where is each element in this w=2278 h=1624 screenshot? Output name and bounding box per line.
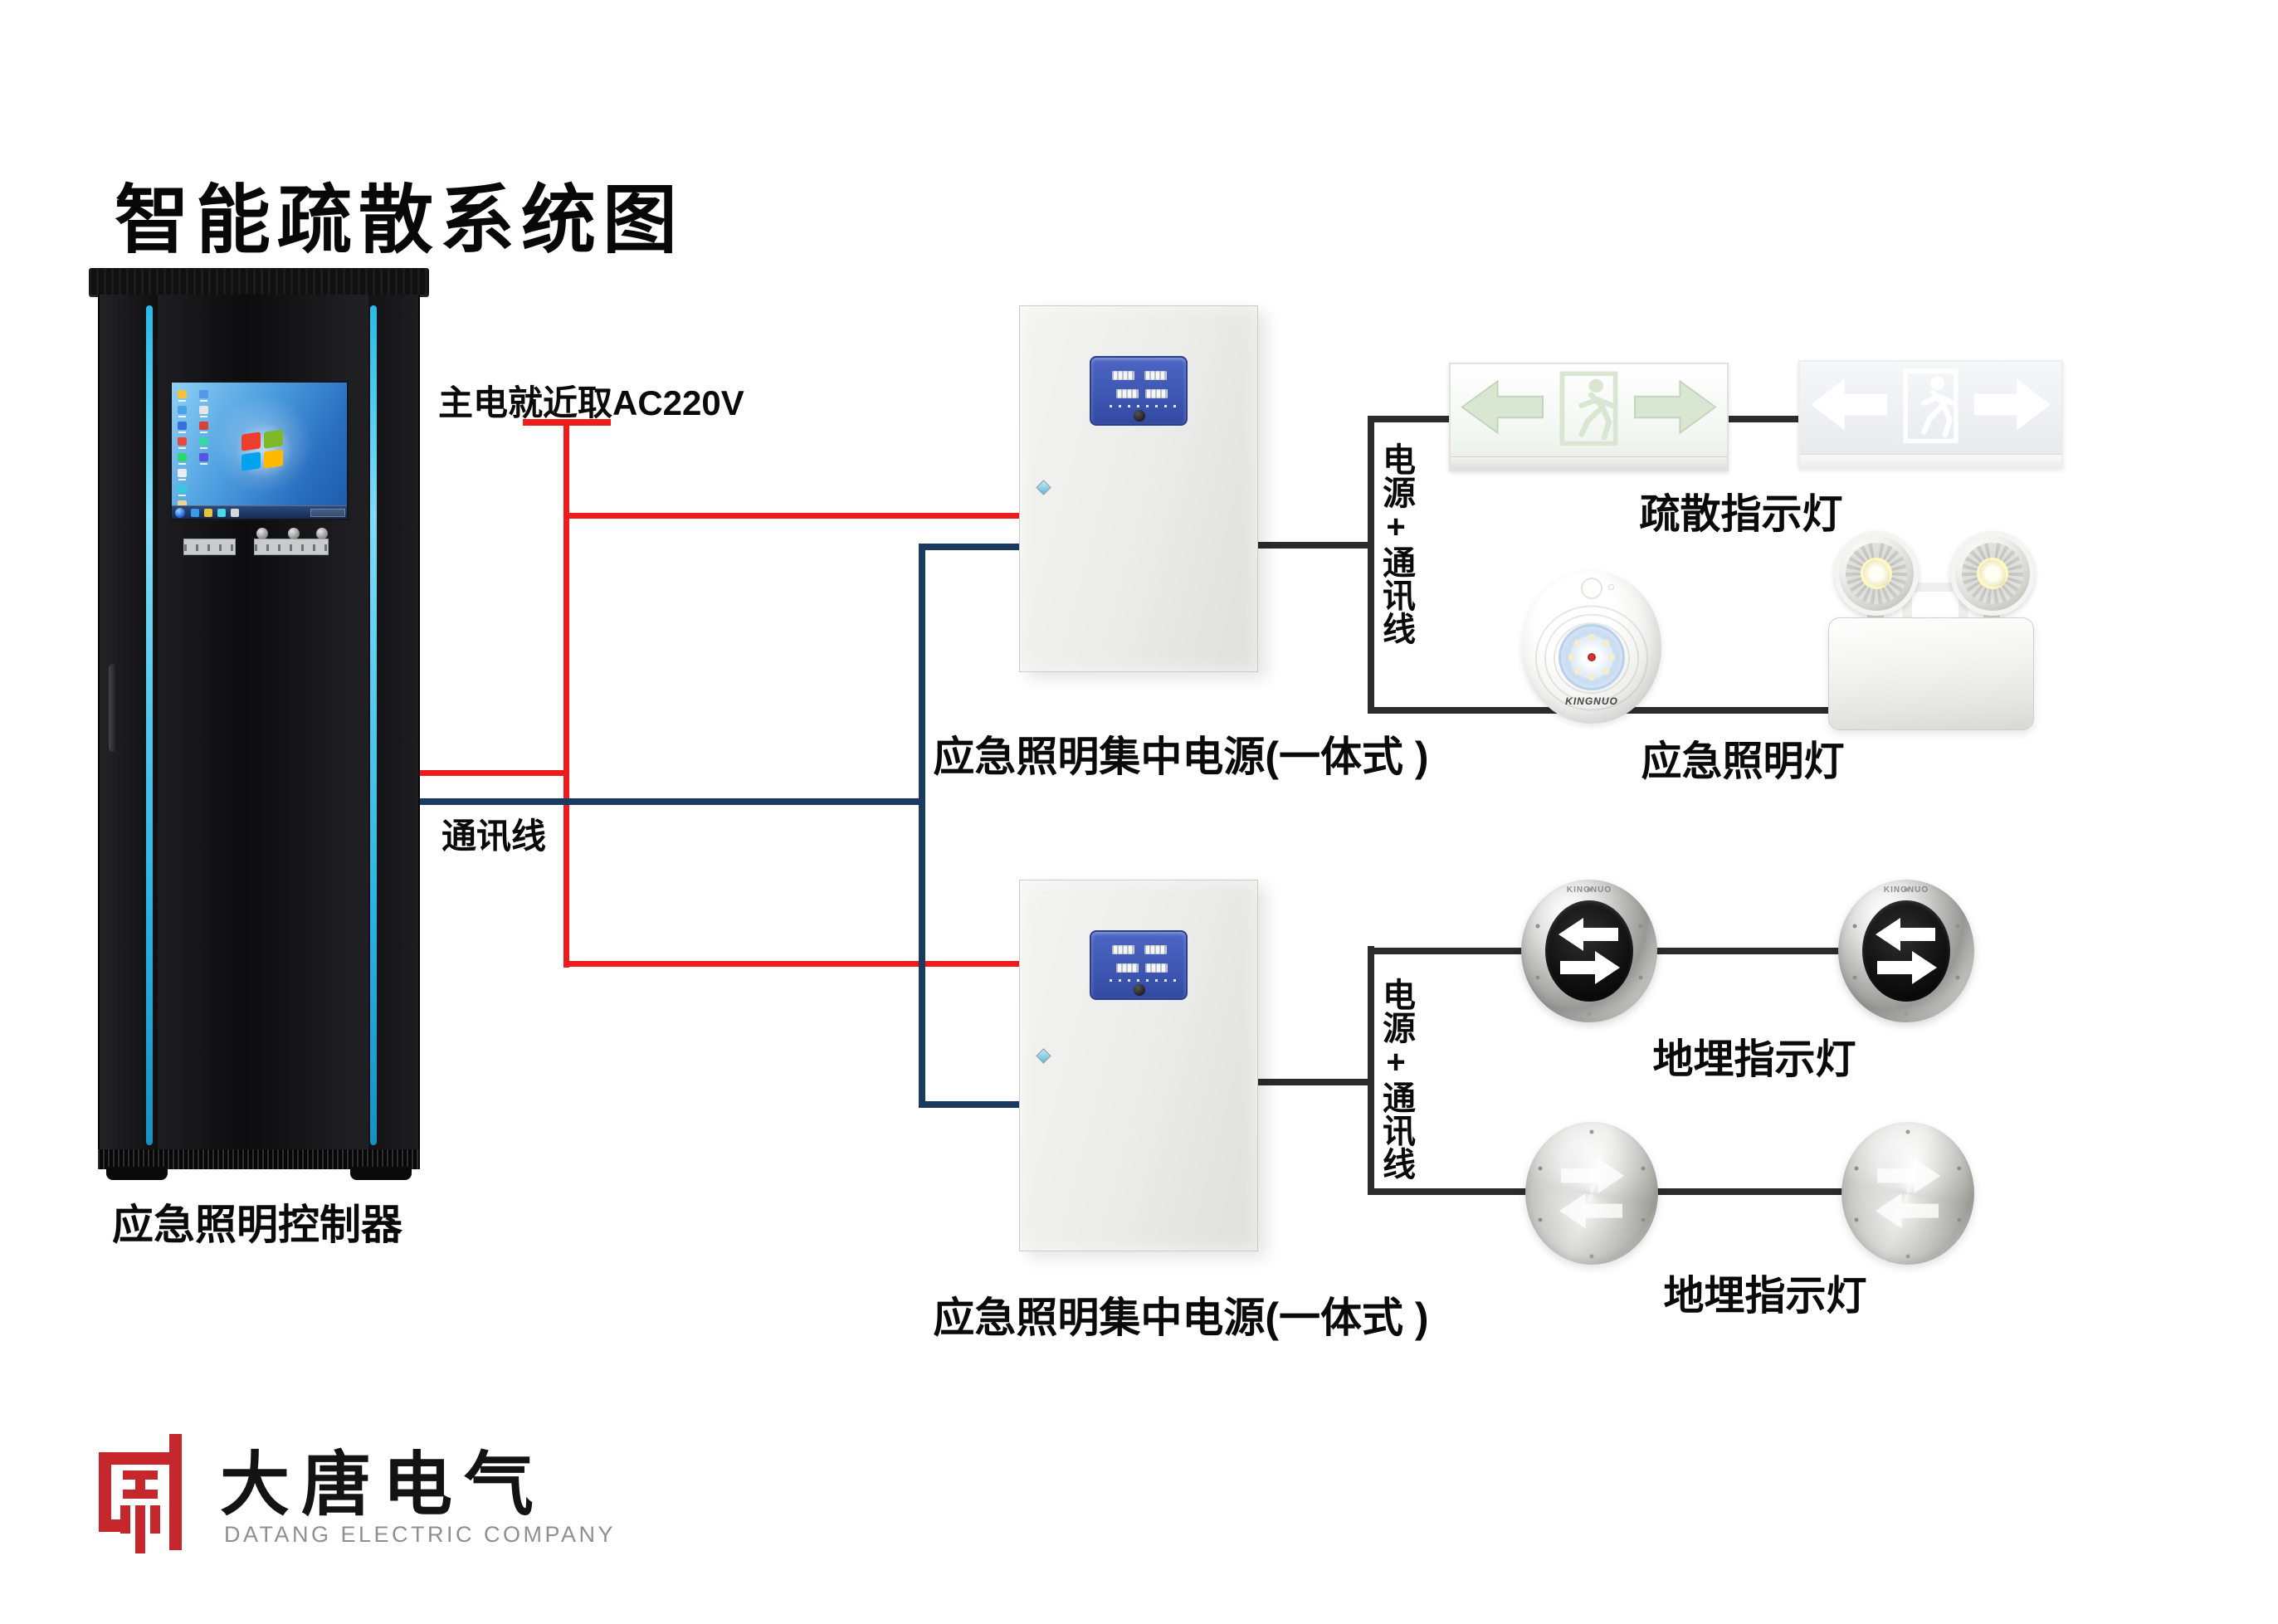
arrow-left-icon xyxy=(1876,918,1935,951)
exit-sign-2 xyxy=(1798,360,2063,469)
box-keyhole-icon xyxy=(1036,480,1051,495)
wire-main-power-branch-box1 xyxy=(563,513,1019,519)
desktop-icon xyxy=(178,406,187,414)
desktop-icon xyxy=(199,437,208,446)
exit-sign-graphic xyxy=(1805,365,2056,445)
screws xyxy=(1906,1192,1910,1196)
desktop-icon xyxy=(199,406,208,414)
page-title: 智能疏散系统图 xyxy=(115,159,684,267)
desktop-icon xyxy=(178,437,187,446)
exit-sign-1 xyxy=(1449,363,1729,471)
box-keyhole-icon xyxy=(1036,1048,1051,1063)
display-segment xyxy=(1145,963,1168,973)
cabinet-knob-1 xyxy=(256,528,268,539)
power-comm-label-top: 电源+通讯线 xyxy=(1379,442,1412,645)
lamp-sensor-icon xyxy=(1581,578,1602,599)
windows-pane-blue xyxy=(241,451,261,471)
wire-bracket1-vertical xyxy=(1368,416,1374,714)
arrow-right-icon xyxy=(1974,378,2051,430)
power-box-2 xyxy=(1019,880,1258,1251)
screws xyxy=(1590,1192,1594,1196)
desktop-icon xyxy=(199,390,208,398)
wire-bracket2-vertical xyxy=(1368,946,1374,1195)
arrow-left-icon xyxy=(1811,378,1887,430)
wire-main-power-vertical xyxy=(563,419,569,968)
ground-light-silver-2 xyxy=(1841,1122,1974,1265)
power-box-2-control-panel xyxy=(1090,930,1188,1000)
power-box-1 xyxy=(1019,305,1258,672)
arrow-right-icon xyxy=(1560,951,1620,984)
exit-sign-base xyxy=(1800,454,2061,467)
start-orb-icon xyxy=(175,508,185,518)
exit-sign-base xyxy=(1451,456,1727,470)
emergency-lamp-label: 应急照明灯 xyxy=(1577,729,1909,788)
power-comm-label-bottom: 电源+通讯线 xyxy=(1379,978,1412,1180)
taskbar-icon xyxy=(217,509,226,517)
desktop-icons-col1 xyxy=(178,390,187,516)
display-segment xyxy=(1144,371,1167,380)
wire-box2-output xyxy=(1257,1079,1374,1085)
wire-comm-branch-box1 xyxy=(919,544,1019,550)
taskbar xyxy=(172,505,347,519)
exit-sign-graphic xyxy=(1456,368,1722,447)
cabinet-switch-panel-right xyxy=(254,539,329,555)
desktop-icon xyxy=(178,453,187,461)
cabinet-foot-left xyxy=(106,1167,168,1180)
ground-light-dark-1: KINGNUO xyxy=(1521,880,1657,1022)
wire-box1-output xyxy=(1257,542,1374,549)
taskbar-icon xyxy=(191,509,199,517)
system-tray xyxy=(310,509,345,517)
datang-logo-emblem xyxy=(84,1424,200,1560)
cabinet-foot-right xyxy=(350,1167,412,1180)
display-segment xyxy=(1145,389,1168,398)
twin-lamp-head-right xyxy=(1950,531,2035,616)
cabinet-top-cap xyxy=(89,268,429,295)
lamp-brand-text: KINGNUO xyxy=(1522,695,1661,707)
wire-comm-branch-box2 xyxy=(919,1101,1019,1108)
windows-pane-red xyxy=(241,432,261,451)
logo-company-name-en: DATANG ELECTRIC COMPANY xyxy=(224,1522,616,1548)
windows-pane-yellow xyxy=(264,449,283,468)
panel-button xyxy=(1134,410,1145,422)
twin-lamp-body xyxy=(1828,617,2034,730)
taskbar-icons xyxy=(188,509,241,517)
cabinet-knob-2 xyxy=(288,528,300,539)
taskbar-icon xyxy=(204,509,212,517)
wire-main-power-branch-box2 xyxy=(563,961,1019,967)
twin-lamp-head-left xyxy=(1834,531,1919,616)
panel-indicator-marks xyxy=(1110,405,1176,407)
running-man-icon xyxy=(1582,379,1612,437)
desktop-icon xyxy=(199,422,208,430)
desktop-icon xyxy=(199,453,208,461)
desktop-icon xyxy=(178,390,187,398)
lamp-led xyxy=(1861,558,1892,589)
wire-comm-vertical xyxy=(919,544,925,1108)
ground-light-label-1: 地埋指示灯 xyxy=(1588,1027,1920,1085)
diagram-canvas: 智能疏散系统图 主电就近取AC220V 通讯线 电源+通讯线 电源+通讯线 xyxy=(0,0,2278,1624)
taskbar-icon xyxy=(231,509,239,517)
desktop-icon xyxy=(178,469,187,477)
arrow-right-icon xyxy=(1877,1158,1940,1193)
display-segment xyxy=(1112,945,1134,954)
lamp-center-dot xyxy=(1588,653,1596,661)
wire-comm-from-cabinet xyxy=(413,798,925,805)
power-box-1-control-panel xyxy=(1090,356,1188,426)
lamp-led xyxy=(1977,558,2008,589)
cabinet-label: 应急照明控制器 xyxy=(91,1192,423,1251)
display-segment xyxy=(1144,945,1167,954)
ground-light-brand: KINGNUO xyxy=(1521,885,1657,895)
cabinet-knob-3 xyxy=(316,528,328,539)
arrow-left-icon xyxy=(1876,1193,1939,1228)
cabinet-monitor-screen xyxy=(170,381,349,520)
windows-pane-green xyxy=(264,429,283,448)
wire-main-power-to-cabinet xyxy=(413,770,569,776)
display-segment xyxy=(1116,389,1139,398)
desktop-icon xyxy=(178,485,187,493)
main-power-wire-label: 主电就近取AC220V xyxy=(438,375,744,426)
ground-light-label-2: 地埋指示灯 xyxy=(1599,1263,1931,1322)
arrow-left-icon xyxy=(1559,918,1618,951)
desktop-icon xyxy=(178,422,187,430)
power-box-2-label: 应急照明集中电源(一体式 ) xyxy=(932,1285,1430,1344)
round-emergency-lamp: KINGNUO xyxy=(1522,571,1661,724)
display-segment xyxy=(1112,371,1134,380)
arrow-left-icon xyxy=(1559,1193,1622,1228)
arrow-right-icon xyxy=(1635,381,1715,432)
arrow-left-icon xyxy=(1462,381,1543,432)
running-man-icon xyxy=(1924,377,1953,435)
power-box-1-label: 应急照明集中电源(一体式 ) xyxy=(932,724,1430,783)
cabinet-led-strip-left xyxy=(146,305,153,1145)
exit-sign-label: 疏散指示灯 xyxy=(1579,481,1903,540)
lamp-led-center xyxy=(1559,624,1625,690)
ground-light-dark-2: KINGNUO xyxy=(1838,880,1974,1022)
screws xyxy=(1588,949,1592,953)
panel-button xyxy=(1134,984,1145,996)
arrow-right-icon xyxy=(1561,1158,1624,1193)
cabinet-led-strip-right xyxy=(370,305,377,1145)
screws xyxy=(1905,949,1909,953)
arrow-right-icon xyxy=(1877,951,1937,984)
ground-light-brand: KINGNUO xyxy=(1838,885,1974,895)
lamp-sensor-dot xyxy=(1608,584,1614,590)
cabinet-switch-panel-left xyxy=(183,539,236,555)
cabinet-door-handle xyxy=(109,664,118,752)
comm-wire-label: 通讯线 xyxy=(441,808,546,859)
desktop-icons-col2 xyxy=(199,390,208,469)
panel-indicator-marks xyxy=(1110,979,1176,982)
logo-company-name-cn: 大唐电气 xyxy=(220,1429,545,1529)
windows-logo-icon xyxy=(241,431,286,471)
display-segment xyxy=(1116,963,1139,973)
ground-light-silver-1 xyxy=(1525,1122,1658,1265)
